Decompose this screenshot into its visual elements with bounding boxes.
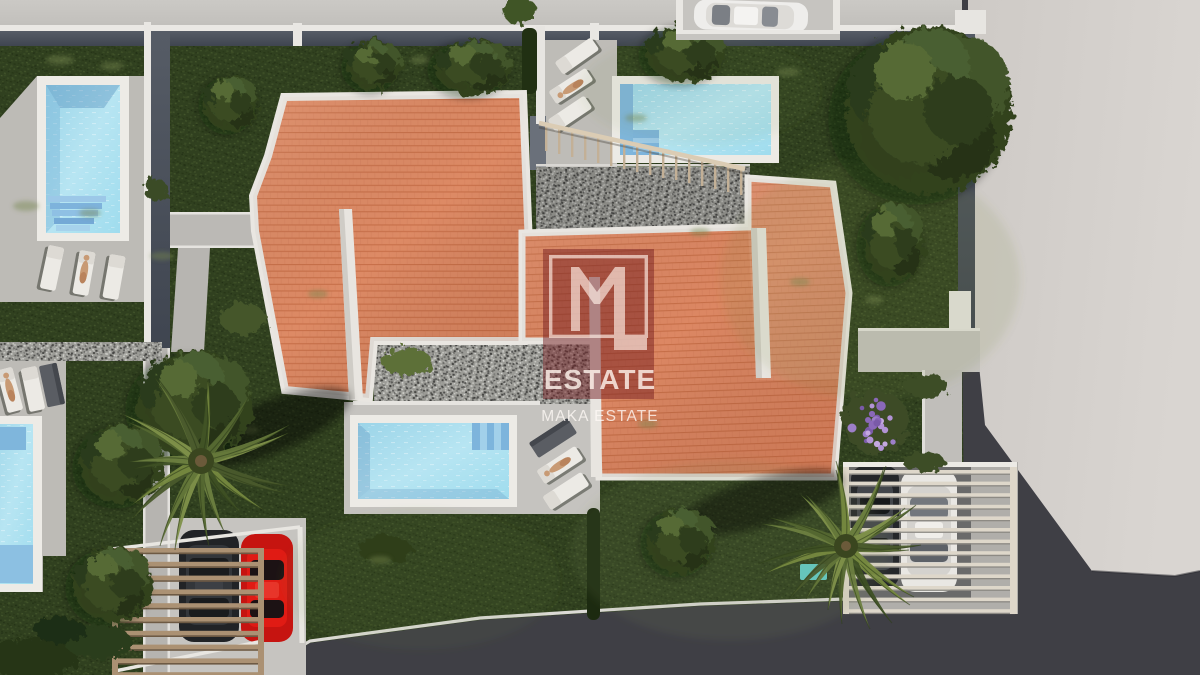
svg-text:MAKA ESTATE: MAKA ESTATE (541, 408, 658, 425)
svg-text:ESTATE: ESTATE (544, 364, 656, 395)
